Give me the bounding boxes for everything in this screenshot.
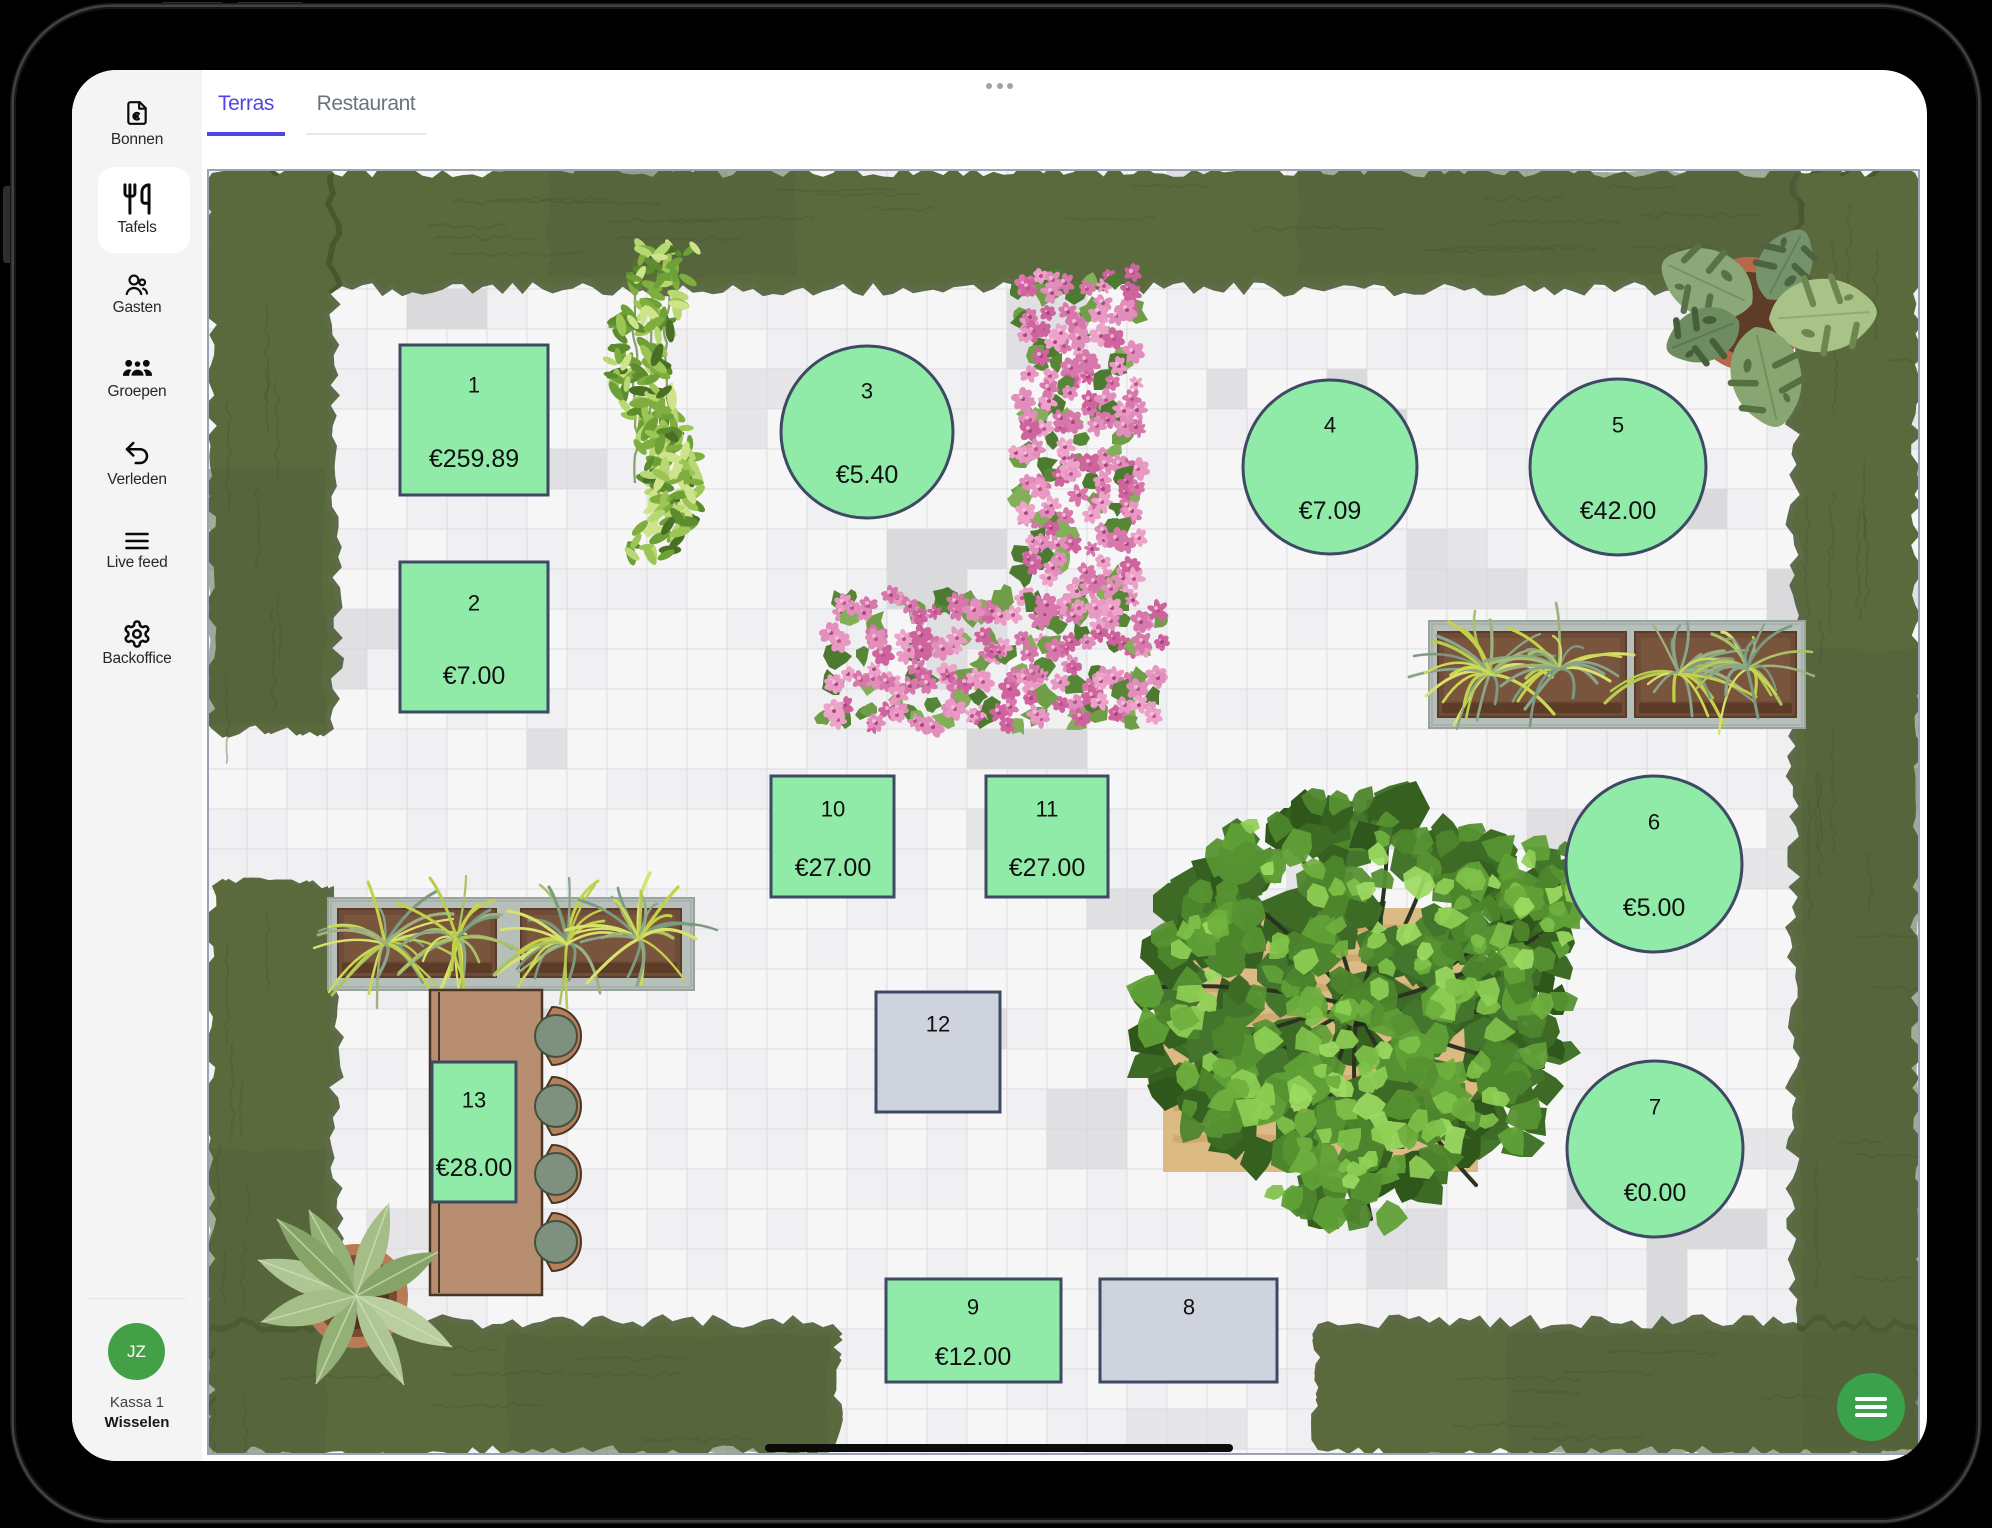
svg-text:9: 9 bbox=[967, 1295, 979, 1320]
svg-text:7: 7 bbox=[1649, 1095, 1661, 1120]
svg-text:4: 4 bbox=[1324, 413, 1336, 438]
svg-text:€28.00: €28.00 bbox=[436, 1154, 512, 1182]
svg-text:8: 8 bbox=[1183, 1295, 1195, 1320]
svg-text:€27.00: €27.00 bbox=[1009, 854, 1085, 882]
svg-text:10: 10 bbox=[821, 797, 845, 822]
svg-text:2: 2 bbox=[468, 591, 480, 616]
svg-text:€259.89: €259.89 bbox=[429, 445, 519, 473]
svg-text:€12.00: €12.00 bbox=[935, 1343, 1011, 1371]
svg-text:€7.09: €7.09 bbox=[1299, 497, 1362, 525]
svg-text:11: 11 bbox=[1036, 797, 1059, 822]
svg-text:€7.00: €7.00 bbox=[443, 662, 506, 690]
svg-text:€0.00: €0.00 bbox=[1624, 1179, 1687, 1207]
svg-text:12: 12 bbox=[926, 1012, 950, 1037]
svg-text:€42.00: €42.00 bbox=[1580, 497, 1656, 525]
svg-text:€5.00: €5.00 bbox=[1623, 894, 1686, 922]
svg-text:13: 13 bbox=[462, 1088, 486, 1113]
svg-text:€27.00: €27.00 bbox=[795, 854, 871, 882]
svg-text:1: 1 bbox=[468, 373, 480, 398]
svg-text:5: 5 bbox=[1612, 413, 1624, 438]
svg-text:3: 3 bbox=[861, 379, 873, 404]
svg-text:€5.40: €5.40 bbox=[836, 461, 899, 489]
svg-text:6: 6 bbox=[1648, 810, 1660, 835]
